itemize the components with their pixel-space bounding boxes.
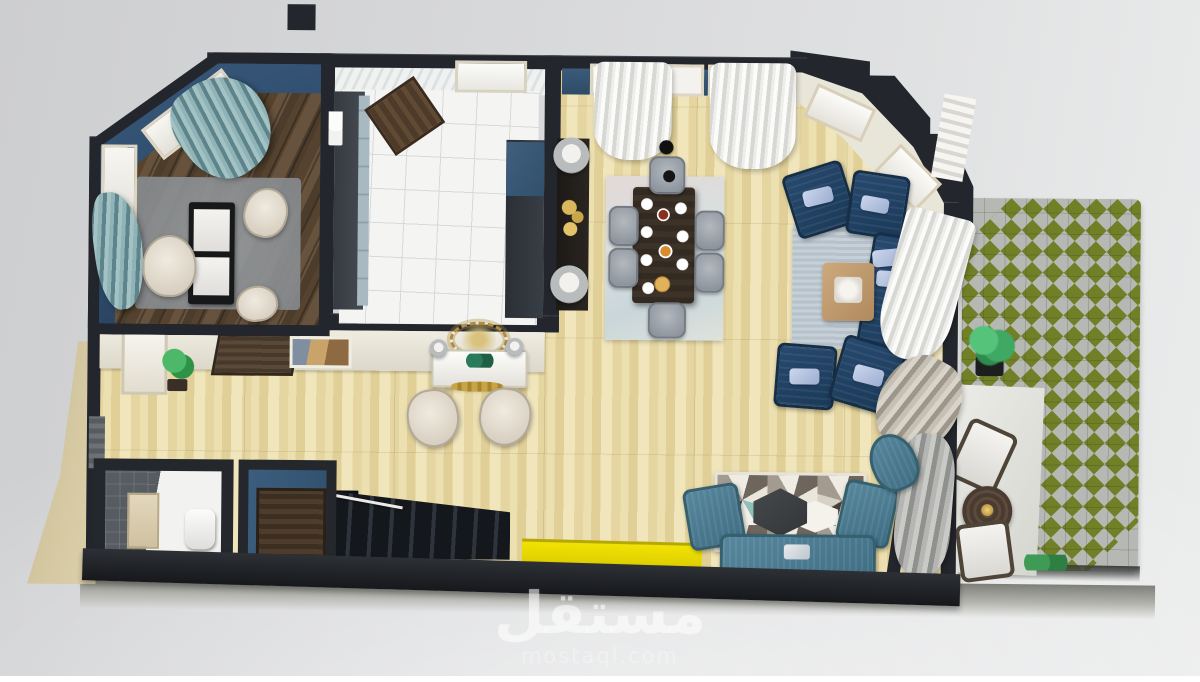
plate — [641, 198, 653, 210]
bathroom-door — [127, 493, 159, 549]
pendant-lamp-2 — [663, 170, 675, 182]
open-door-leaf — [211, 333, 301, 376]
sideboard-lamp-top — [553, 137, 589, 173]
patio-lounger-2 — [954, 519, 1015, 584]
wall-painting — [289, 336, 351, 369]
dining-chair-head-bottom — [648, 302, 686, 338]
sideboard-lamp-bottom — [550, 265, 588, 303]
floorplan-scene: مستقل mostaql.com — [0, 0, 1200, 676]
plate — [676, 258, 688, 270]
plate — [675, 202, 687, 214]
column-cap — [287, 4, 315, 30]
kitchen-room — [333, 53, 545, 332]
office-room — [88, 46, 333, 336]
dining-chair-left-2 — [608, 248, 638, 288]
console-green-decor — [461, 353, 493, 367]
garden-shrub-small — [1024, 554, 1068, 570]
office-desk-top-panel-2 — [193, 257, 229, 295]
dish-orange — [658, 244, 672, 258]
plate — [677, 230, 689, 242]
wardrobe — [256, 488, 327, 563]
dish-pizza — [654, 276, 670, 292]
dining-chair-right-2 — [694, 253, 724, 293]
kitchen-cabinet-front — [357, 96, 370, 306]
toilet — [185, 509, 215, 549]
office-desk-top-panel-1 — [194, 209, 230, 251]
house-plan — [0, 0, 1200, 682]
office-armchair — [142, 235, 197, 297]
dining-chair-left-1 — [609, 206, 639, 246]
kitchen-counter-blue-panel — [506, 142, 544, 196]
hall-plant-pot — [167, 379, 187, 391]
console-lamp-left — [430, 339, 448, 357]
coffee-table-tray — [834, 277, 862, 303]
pendant-lamp-1 — [659, 140, 673, 154]
pillow — [789, 368, 819, 384]
dish-red — [657, 208, 670, 221]
console-lamp-right — [506, 338, 524, 356]
family-sofa-pillow — [784, 544, 810, 559]
kitchen-vases — [328, 111, 342, 145]
plate — [640, 254, 652, 266]
kitchen-window — [455, 60, 527, 93]
garden-plant — [959, 316, 1019, 371]
plate — [641, 226, 653, 238]
dining-chair-right-1 — [695, 211, 725, 251]
plate — [642, 282, 654, 294]
sideboard-gold-bottles — [561, 195, 585, 243]
patio-table-lamp — [981, 504, 993, 516]
